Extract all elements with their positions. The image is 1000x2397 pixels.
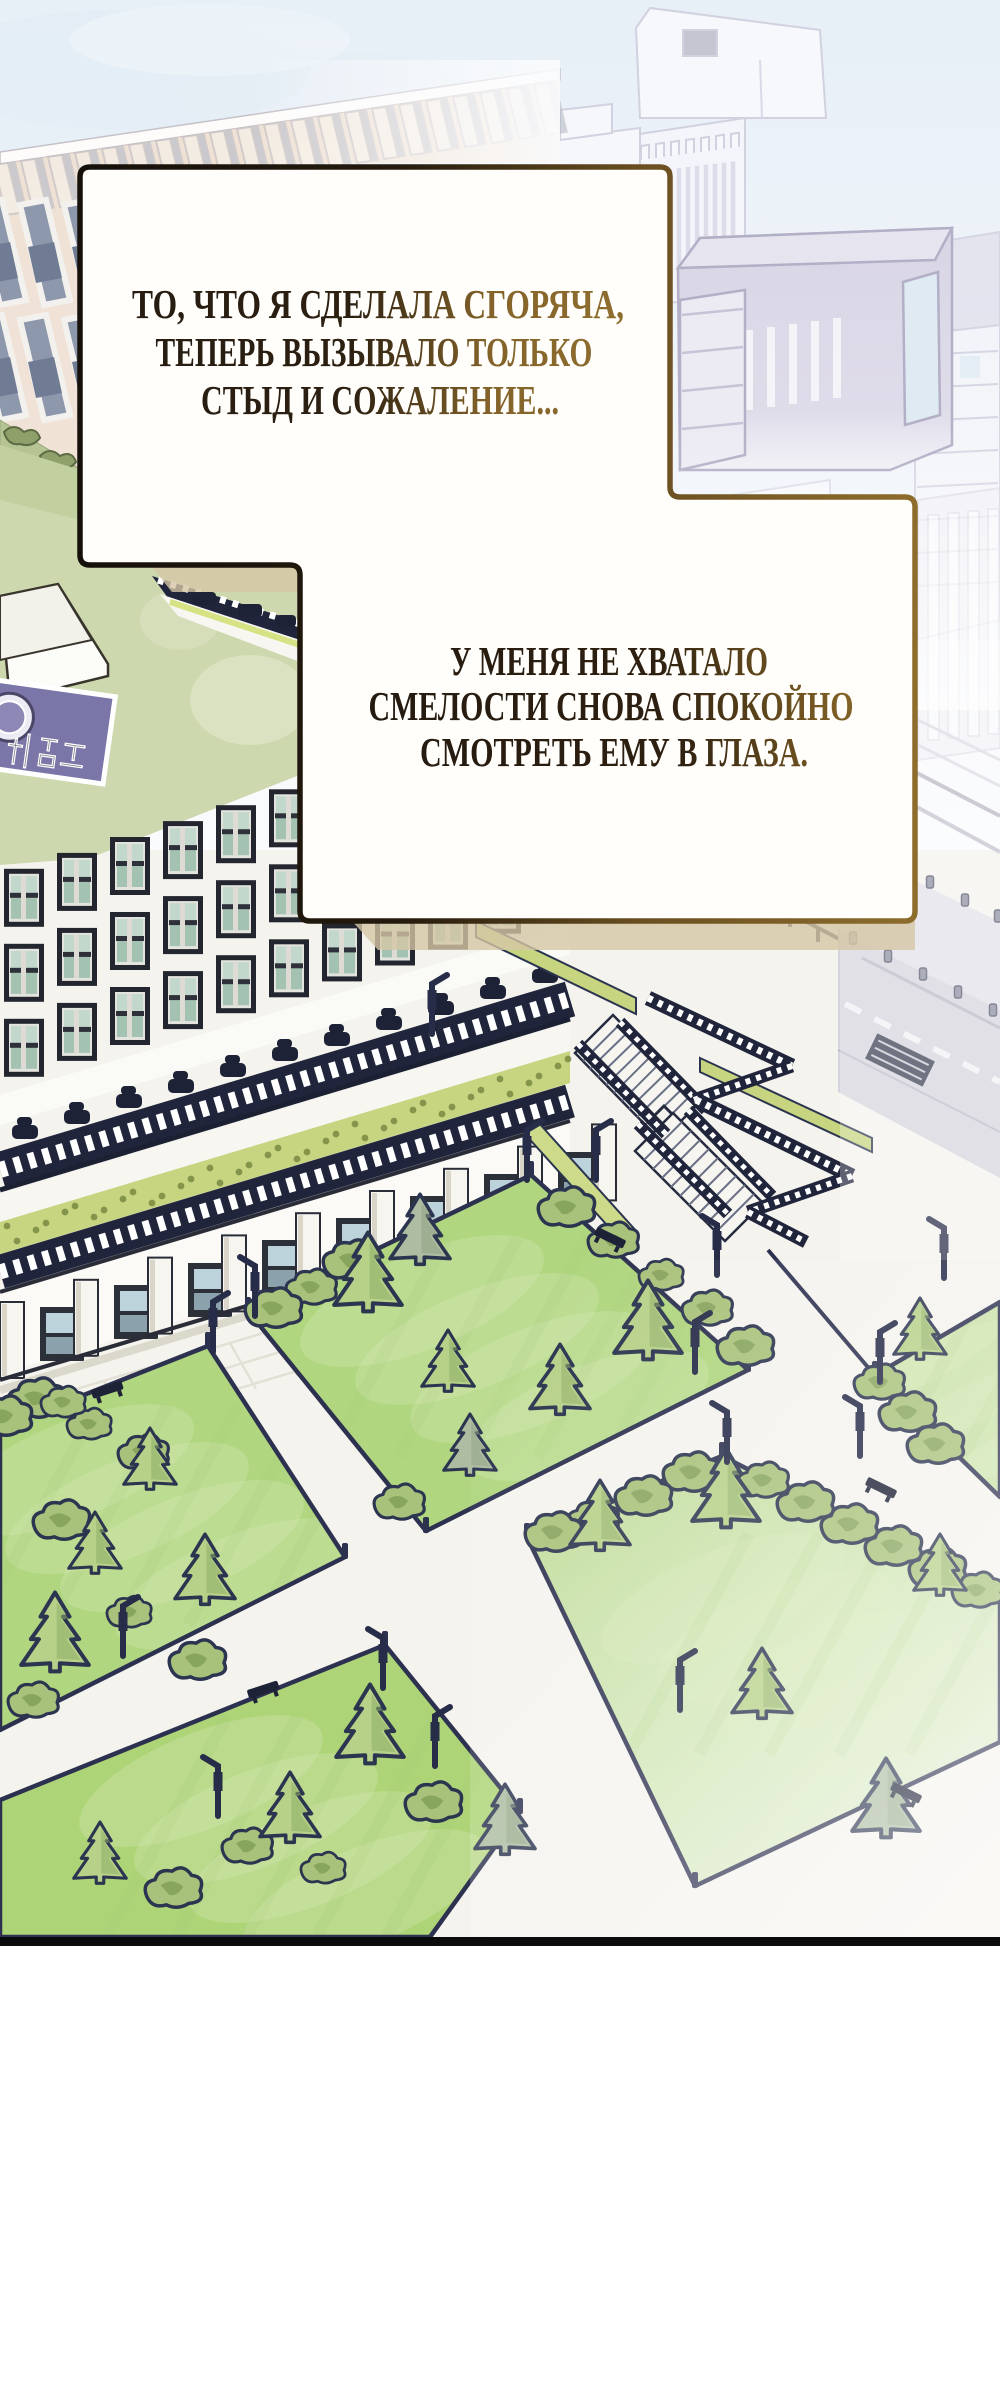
svg-text:ТО, ЧТО Я СДЕЛАЛА СГОРЯЧА,: ТО, ЧТО Я СДЕЛАЛА СГОРЯЧА,: [132, 281, 624, 327]
svg-text:У МЕНЯ НЕ ХВАТАЛО: У МЕНЯ НЕ ХВАТАЛО: [450, 638, 768, 684]
svg-text:ТЕПЕРЬ ВЫЗЫВАЛО ТОЛЬКО: ТЕПЕРЬ ВЫЗЫВАЛО ТОЛЬКО: [156, 329, 593, 375]
svg-text:СМЕЛОСТИ СНОВА СПОКОЙНО: СМЕЛОСТИ СНОВА СПОКОЙНО: [369, 683, 854, 729]
svg-text:СТЫД И СОЖАЛЕНИЕ...: СТЫД И СОЖАЛЕНИЕ...: [201, 377, 559, 423]
svg-text:СМОТРЕТЬ ЕМУ В ГЛАЗА.: СМОТРЕТЬ ЕМУ В ГЛАЗА.: [420, 729, 808, 775]
